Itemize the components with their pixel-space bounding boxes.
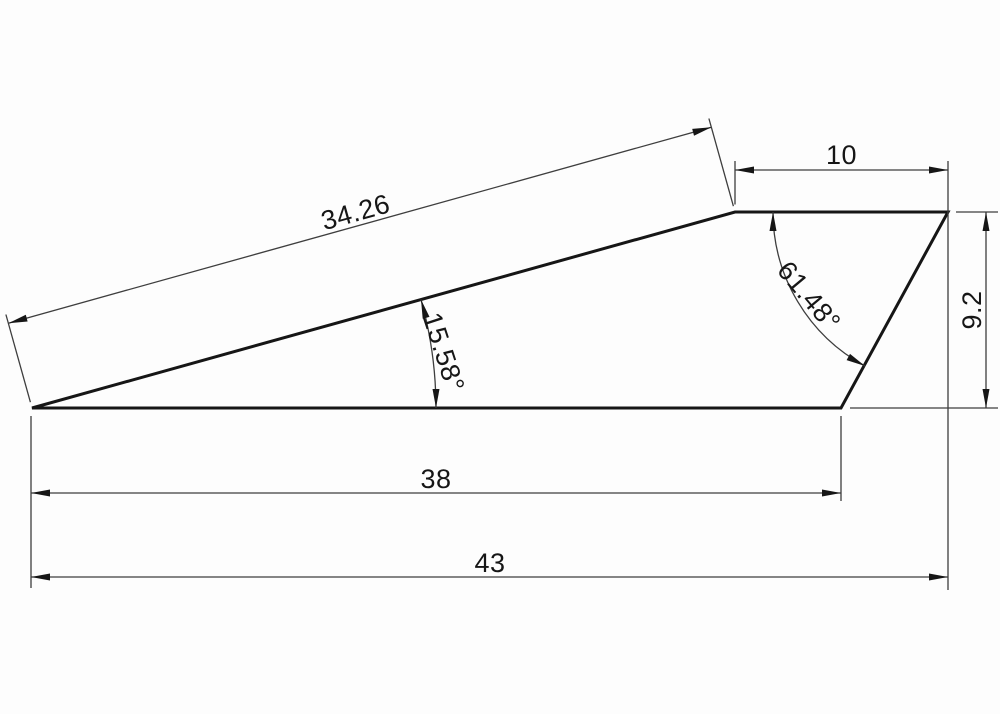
arrowhead-slope-left: [8, 315, 27, 324]
arrowheads: [8, 127, 989, 580]
arrowhead-height-down: [983, 389, 990, 408]
label-right-height: 9.2: [957, 290, 987, 329]
arrowhead-corner-angle-bottom: [847, 354, 865, 366]
label-slope-angle: 15.58°: [417, 309, 471, 396]
extension-line-slope-right: [709, 119, 734, 207]
label-bottom-width: 38: [420, 464, 451, 494]
label-corner-angle: 61.48°: [771, 255, 846, 337]
arrowhead-bottom-right: [822, 490, 841, 497]
extension-line-slope-left: [6, 315, 31, 403]
label-overall-width: 43: [474, 548, 505, 578]
label-top-width: 10: [826, 140, 857, 170]
arrowhead-overall-right: [929, 574, 948, 581]
extension-lines: [6, 119, 998, 591]
arrowhead-top-left: [735, 167, 754, 174]
arrowhead-bottom-left: [31, 490, 50, 497]
dimension-labels: 34.26 10 9.2 38 43 15.58° 61.48°: [318, 140, 987, 578]
arrowhead-overall-left: [31, 574, 50, 581]
arrowhead-slope-right: [692, 127, 711, 136]
arrowhead-height-up: [983, 212, 990, 231]
arrowhead-top-right: [929, 167, 948, 174]
dimension-lines: [8, 127, 986, 577]
technical-drawing-canvas: 34.26 10 9.2 38 43 15.58° 61.48°: [0, 0, 1000, 714]
arrowhead-slope-angle-bottom: [433, 389, 440, 408]
arrowhead-corner-angle-top: [770, 212, 777, 231]
label-slope-length: 34.26: [318, 188, 394, 236]
technical-drawing: 34.26 10 9.2 38 43 15.58° 61.48°: [0, 0, 1000, 714]
